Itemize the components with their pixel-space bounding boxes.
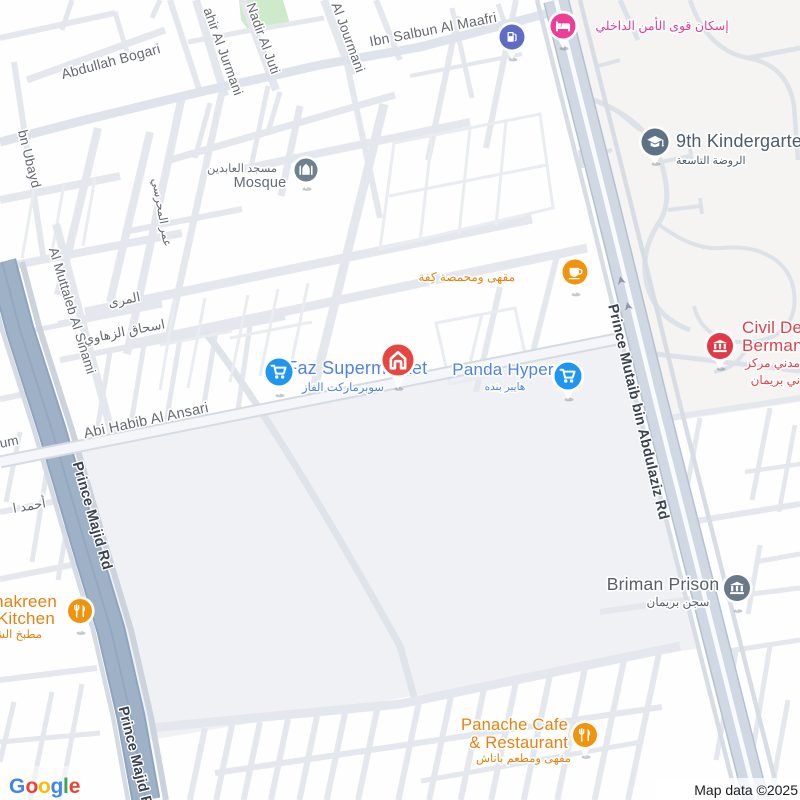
svg-text:Civil Def: Civil Def xyxy=(742,318,800,337)
svg-text:Map data ©2025: Map data ©2025 xyxy=(694,782,798,798)
svg-text:Berman: Berman xyxy=(742,336,800,355)
svg-text:مطبخ الشا: مطبخ الشا xyxy=(0,628,42,641)
svg-text:Mosque: Mosque xyxy=(234,175,287,191)
svg-text:l: l xyxy=(63,775,68,798)
svg-text:ني بريمان: ني بريمان xyxy=(751,373,800,387)
svg-text:e: e xyxy=(69,775,80,798)
svg-text:هايبر بنده: هايبر بنده xyxy=(485,381,526,393)
svg-text:سجن بريمان: سجن بريمان xyxy=(647,595,710,609)
svg-text:9th Kindergarten: 9th Kindergarten xyxy=(676,131,800,151)
svg-text:G: G xyxy=(9,775,25,798)
svg-text:مسجد العابدين: مسجد العابدين xyxy=(207,162,277,175)
svg-text:o: o xyxy=(38,775,50,798)
svg-text:مدني مركز: مدني مركز xyxy=(744,356,800,370)
svg-text:مقهى ومحمصة كِفة: مقهى ومحمصة كِفة xyxy=(418,270,515,284)
svg-text:o: o xyxy=(26,775,38,798)
svg-text:سوبرماركت الفاز: سوبرماركت الفاز xyxy=(301,381,384,394)
svg-text:Panda Hyper: Panda Hyper xyxy=(452,360,554,379)
svg-text:g: g xyxy=(51,775,63,798)
svg-text:Panache Cafe: Panache Cafe xyxy=(461,716,568,734)
svg-text:مقهى ومطعم باناش: مقهى ومطعم باناش xyxy=(476,752,571,765)
svg-text:الروضة التاسعة: الروضة التاسعة xyxy=(676,155,746,167)
svg-text:إسكان قوى الأمن الداخلي: إسكان قوى الأمن الداخلي xyxy=(595,16,728,34)
svg-text:Kitchen: Kitchen xyxy=(0,609,55,628)
svg-text:& Restaurant: & Restaurant xyxy=(469,734,568,752)
svg-text:Briman Prison: Briman Prison xyxy=(607,574,720,594)
